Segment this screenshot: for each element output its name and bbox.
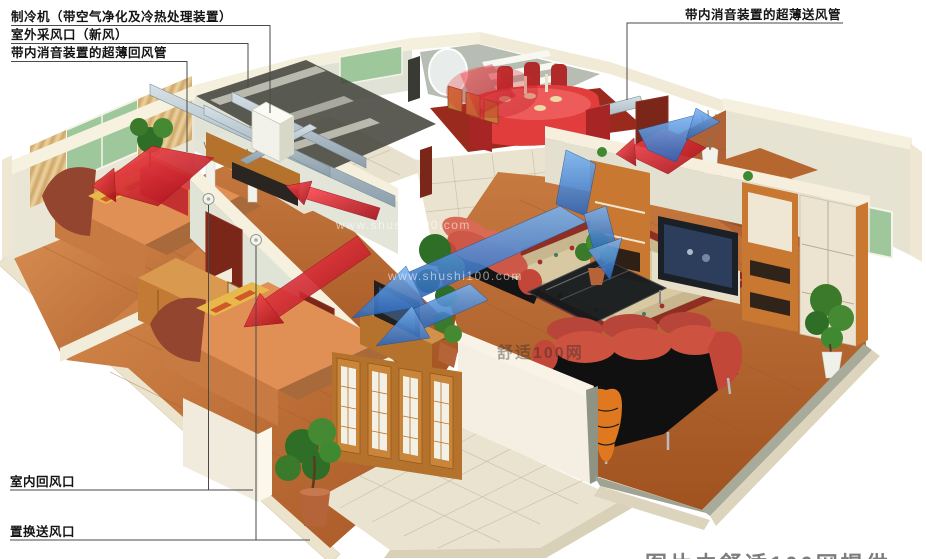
caption-partial: 图片由舒适100网提供: [645, 552, 891, 559]
label-chiller: 制冷机（带空气净化及冷热处理装置）: [11, 9, 232, 24]
label-return-duct: 带内消音装置的超薄回风管: [11, 45, 167, 60]
hall-door: [420, 146, 432, 198]
label-fresh-air-inlet: 室外采风口（新风）: [11, 27, 128, 42]
watermark-brand: 舒适100网: [497, 343, 584, 362]
label-displacement-supply-vent: 置换送风口: [10, 524, 75, 539]
watermark-url-small: www.shushi100.com: [335, 218, 471, 232]
label-supply-duct: 带内消音装置的超薄送风管: [685, 7, 841, 22]
label-indoor-return-vent: 室内回风口: [10, 474, 75, 489]
hvac-diagram-page: www.shushi100.com www.shushi100.com 舒适10…: [0, 0, 926, 559]
watermark-url-large: www.shushi100.com: [387, 269, 523, 283]
french-doors: [332, 352, 462, 480]
apartment-cutaway-illustration: www.shushi100.com www.shushi100.com 舒适10…: [0, 0, 926, 559]
